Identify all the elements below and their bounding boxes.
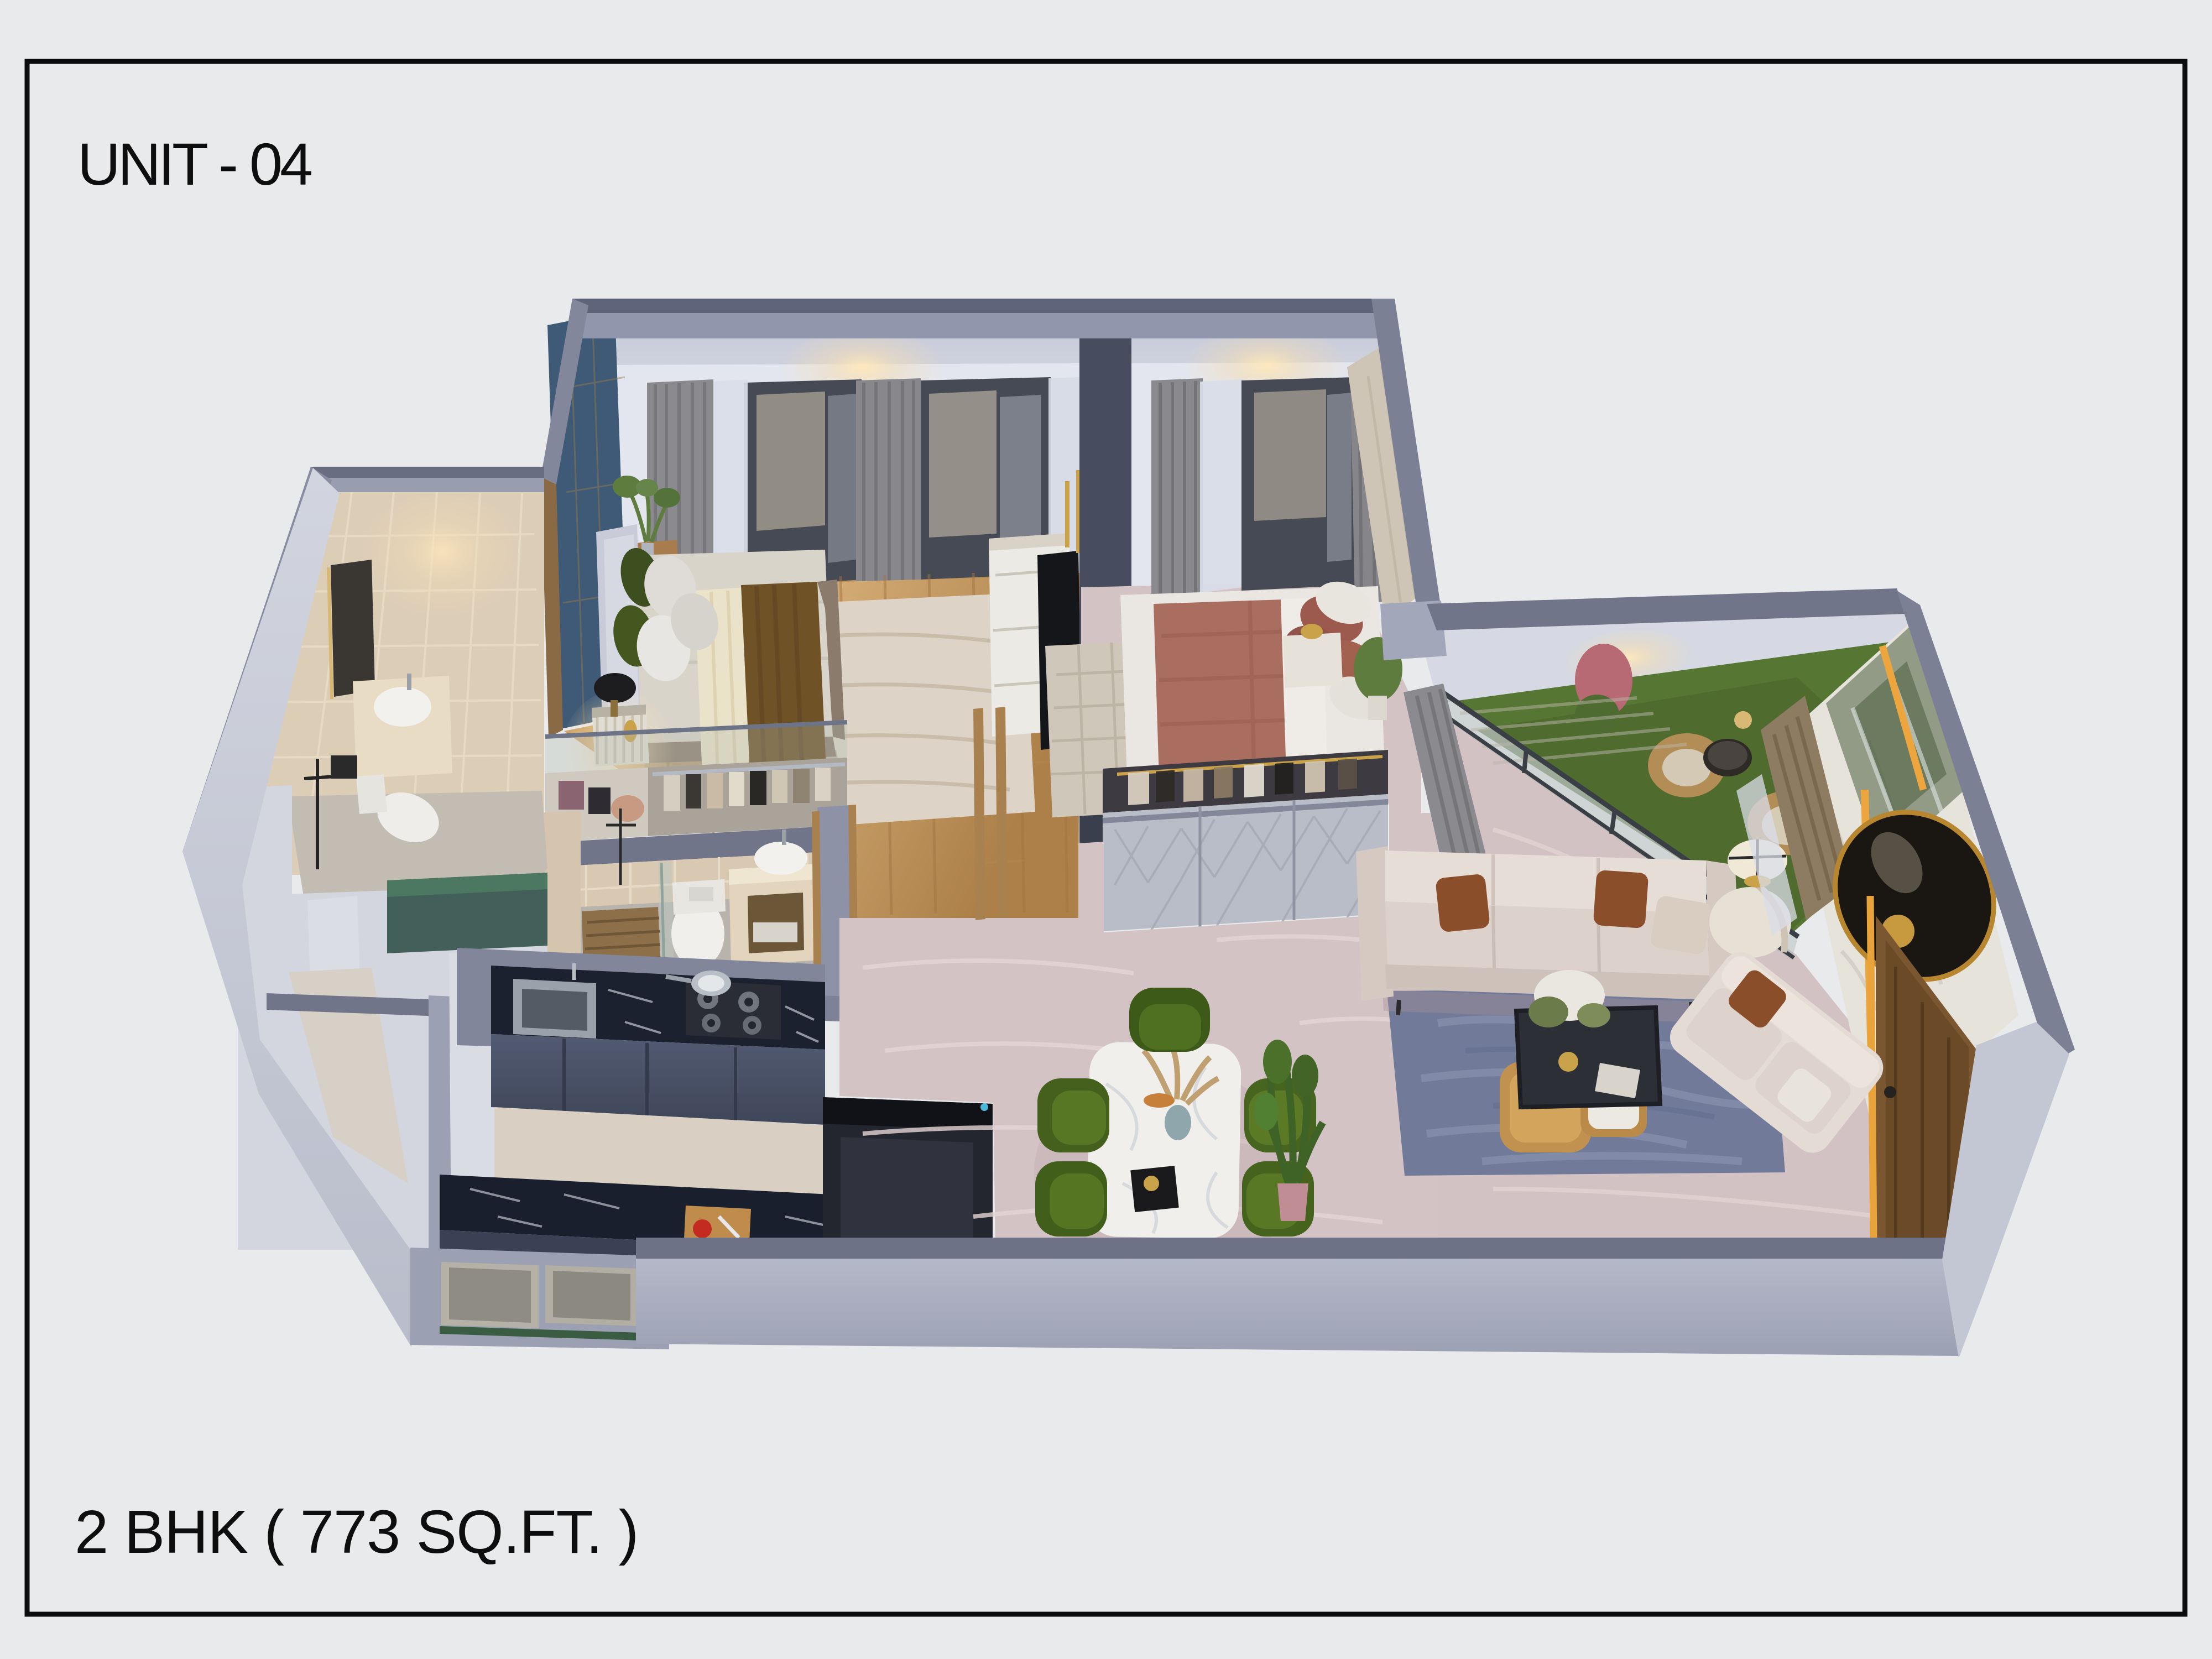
svg-text:UNIT - 04: UNIT - 04: [77, 131, 311, 197]
svg-text:2 BHK ( 773 SQ.FT. ): 2 BHK ( 773 SQ.FT. ): [75, 1498, 638, 1566]
